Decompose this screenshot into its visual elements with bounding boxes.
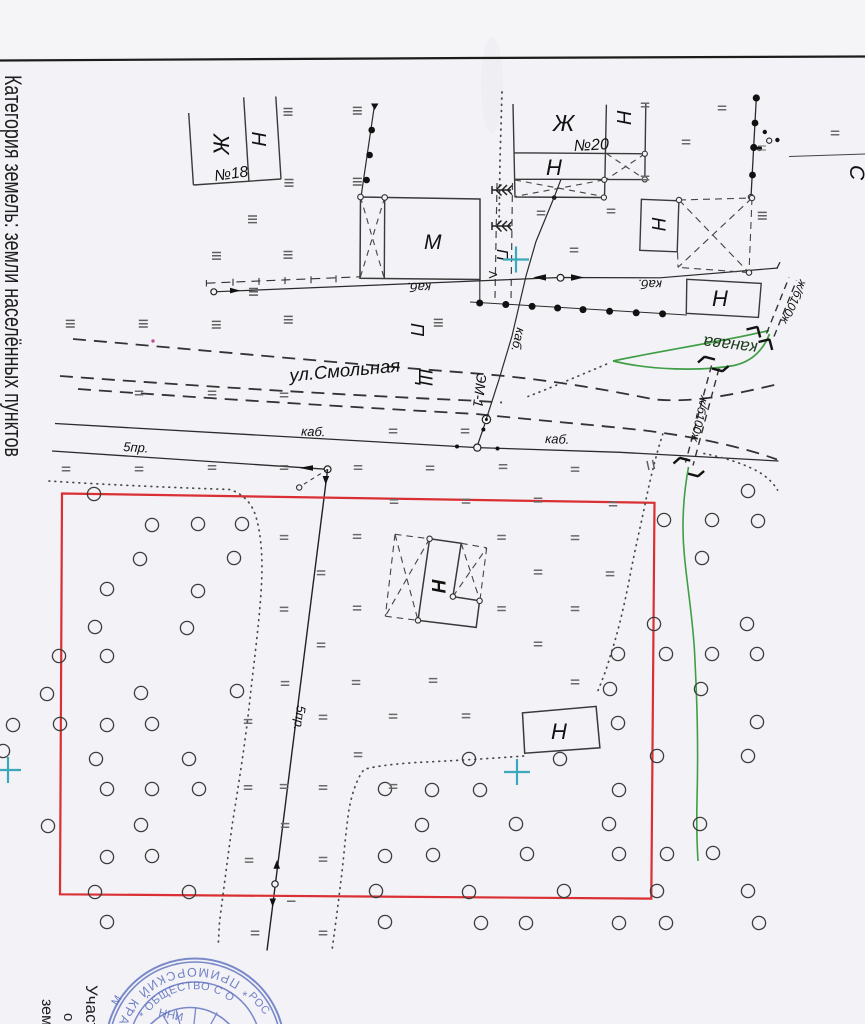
svg-text:№20: №20 <box>573 136 609 155</box>
svg-text:каб.: каб. <box>406 280 431 296</box>
svg-text:С: С <box>845 165 865 181</box>
svg-text:Ж: Ж <box>209 133 234 156</box>
svg-text:земель: земель <box>38 999 55 1024</box>
svg-text:Н: Н <box>647 217 668 231</box>
svg-text:Категория земель: земли населё: Категория земель: земли населённых пункт… <box>0 75 26 457</box>
svg-text:Участок: Участок <box>82 985 101 1024</box>
svg-text:Щ: Щ <box>414 369 435 387</box>
svg-text:каб.: каб. <box>545 431 570 447</box>
svg-text:о: о <box>60 1013 77 1021</box>
svg-text:каб.: каб. <box>301 424 326 440</box>
svg-text:М: М <box>424 231 442 254</box>
svg-text:П: П <box>407 323 427 337</box>
svg-text:Н: Н <box>427 579 448 594</box>
svg-text:Н: Н <box>551 719 567 744</box>
svg-text:Н: Н <box>712 286 728 311</box>
svg-text:Н: Н <box>612 110 634 125</box>
svg-text:Ж: Ж <box>552 110 576 136</box>
svg-text:каб.: каб. <box>637 277 662 293</box>
svg-text:Н: Н <box>247 132 269 147</box>
svg-text:Н: Н <box>546 155 562 180</box>
svg-text:5пр.: 5пр. <box>123 439 149 456</box>
